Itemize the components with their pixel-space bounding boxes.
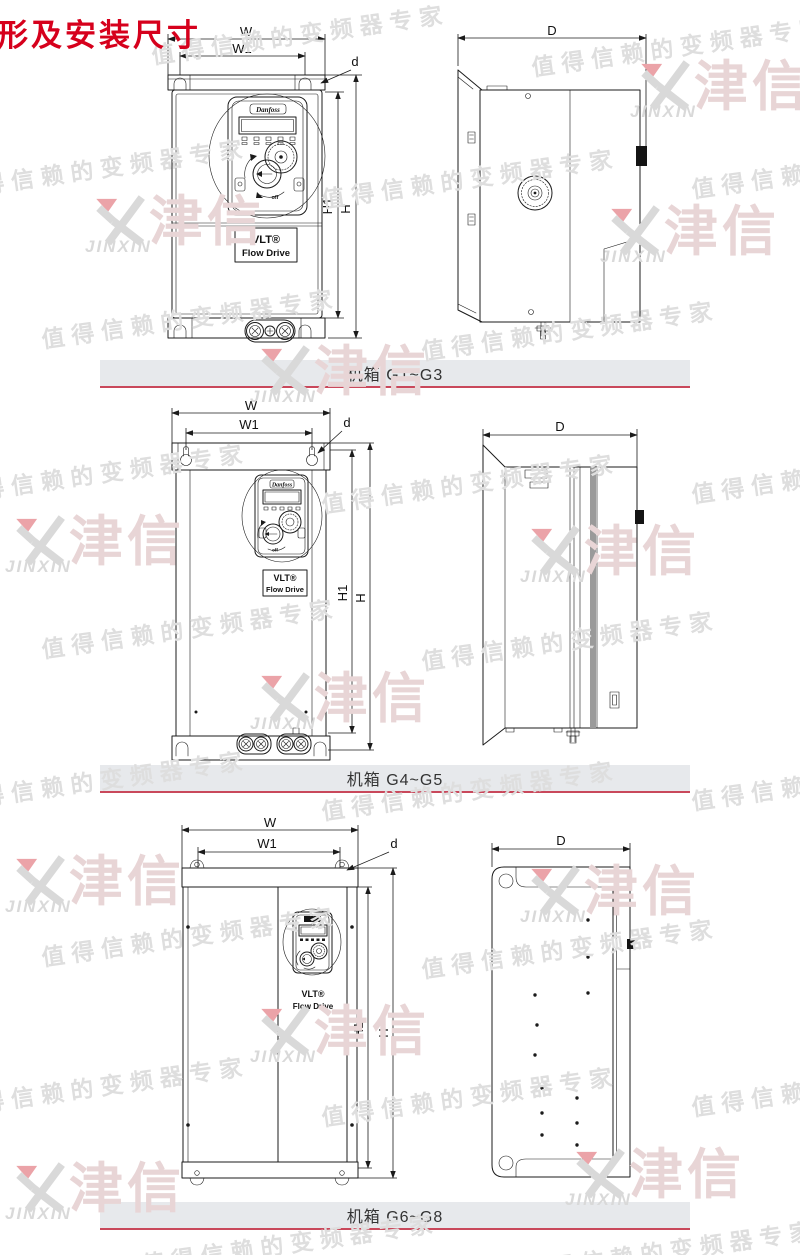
device-side-1 — [458, 70, 647, 339]
gasket-stripe-2 — [590, 467, 596, 728]
watermark-brand-en: JINXIN — [5, 557, 72, 577]
dim-w1-label-1: W1 — [232, 41, 252, 56]
dim-h-label-1: H — [338, 204, 353, 213]
section-caption-g6-g8: 机箱 G6~G8 — [100, 1202, 690, 1230]
page-title: 形及安装尺寸 — [0, 10, 201, 55]
caption-text-1: 机箱 G1~G3 — [347, 361, 443, 385]
danfoss-logo-2: Danfoss — [271, 483, 293, 489]
terminal-tab-3 — [627, 939, 635, 949]
danfoss-logo-1: Danfoss — [255, 106, 280, 114]
dim-depth-label-1: D — [547, 26, 556, 38]
cable-gland-block-1 — [245, 320, 295, 342]
device-side-3 — [492, 867, 635, 1177]
device-front-3: VLT® Flow Drive — [182, 860, 358, 1185]
device-side-2 — [483, 445, 644, 745]
panel-indicator-row-3 — [300, 939, 325, 942]
watermark-brand-cn: 津信 — [694, 60, 800, 114]
panel-indicator-row-2 — [264, 507, 300, 510]
danfoss-bar-3 — [304, 916, 321, 922]
watermark-slogan: 值得信赖的变频器专家 — [689, 741, 800, 816]
watermark-slogan: 值得信赖的变频器专家 — [689, 434, 800, 509]
dim-h-label-2: H — [353, 593, 368, 602]
watermark-logo: 津信 JINXIN — [640, 60, 800, 114]
vlt-label-1: VLT® — [252, 234, 280, 246]
bottom-bolt-2 — [566, 728, 580, 743]
caption-text-2: 机箱 G4~G5 — [347, 766, 443, 790]
dim-w-label-1: W — [240, 26, 253, 39]
watermark-brand-en: JINXIN — [5, 1204, 72, 1224]
side-clips-1 — [468, 132, 475, 225]
drawing-front-g6-g8: W W1 d H1 H — [150, 815, 410, 1195]
dim-h-label-3: H — [376, 1028, 391, 1037]
watermark-slogan: 值得信赖的变频器专家 — [689, 1047, 800, 1122]
dim-h1-label-3: H1 — [351, 1022, 366, 1039]
dim-h1-label-2: H1 — [335, 585, 350, 602]
flowdrive-label-3: Flow Drive — [293, 1002, 334, 1011]
watermark-brand-cn: 津信 — [664, 205, 780, 259]
page: 形及安装尺寸 W W1 d H1 H — [0, 0, 800, 1255]
drawing-side-g1-g3: D — [440, 26, 655, 358]
panel-center-button-2 — [258, 520, 285, 551]
device-front-2: Danfoss off — [172, 443, 330, 760]
dim-d-label-2: d — [343, 415, 350, 430]
jinxin-x-icon — [15, 855, 67, 907]
watermark-slogan: 值得信赖的变频器专家 — [689, 129, 800, 204]
device-front-1: Danfoss — [168, 75, 325, 342]
vlt-label-2: VLT® — [274, 573, 297, 583]
drawing-front-g4-g5: W W1 d H1 H Danfoss — [132, 398, 382, 770]
panel-center-button-1 — [245, 154, 284, 198]
dim-depth-label-3: D — [556, 833, 565, 848]
drawing-side-g6-g8: D — [480, 815, 650, 1195]
dim-w1-label-3: W1 — [257, 836, 277, 851]
panel-dial-1 — [265, 141, 297, 173]
screw-holes-3 — [533, 918, 589, 1146]
dim-w-label-2: W — [245, 398, 258, 413]
dim-d-label-3: d — [390, 836, 397, 851]
section-caption-g1-g3: 机箱 G1~G3 — [100, 360, 690, 388]
dim-w-label-3: W — [264, 815, 277, 830]
jinxin-x-icon — [15, 1162, 67, 1214]
dimensions-side-1: D — [458, 26, 646, 150]
vlt-label-3: VLT® — [302, 989, 325, 999]
drawing-side-g4-g5: D — [470, 398, 650, 770]
section-caption-g4-g5: 机箱 G4~G5 — [100, 765, 690, 793]
dim-d-label-1: d — [351, 54, 358, 69]
mount-tabs-top-3 — [190, 860, 349, 868]
panel-indicator-row-1 — [242, 137, 295, 145]
terminal-tab-1 — [636, 146, 647, 166]
terminal-tab-2 — [635, 510, 644, 524]
dial-off-label-1: off — [271, 195, 278, 201]
bottom-bolt-1 — [535, 322, 551, 339]
dim-w1-label-2: W1 — [239, 417, 259, 432]
dimensions-side-3: D — [492, 833, 630, 867]
keyhole-slots-2 — [181, 447, 318, 466]
dimensions-front-1: W W1 d H1 H — [168, 26, 362, 338]
jinxin-x-icon — [15, 515, 67, 567]
cable-gland-blocks-2 — [237, 734, 311, 754]
dial-off-label-2: off — [272, 548, 278, 553]
flowdrive-label-1: Flow Drive — [242, 248, 290, 259]
watermark-brand-en: JINXIN — [5, 897, 72, 917]
dim-depth-label-2: D — [555, 419, 564, 434]
panel-side-buttons-1 — [235, 178, 304, 191]
dimensions-side-2: D — [483, 419, 637, 467]
panel-center-button-3 — [296, 951, 315, 969]
dimensions-front-3: W W1 d H1 H — [182, 815, 398, 1178]
drawing-front-g1-g3: W W1 d H1 H Danfoss — [132, 26, 372, 358]
caption-text-3: 机箱 G6~G8 — [347, 1203, 443, 1227]
flowdrive-label-2: Flow Drive — [266, 585, 304, 594]
side-badge-1 — [518, 176, 552, 210]
